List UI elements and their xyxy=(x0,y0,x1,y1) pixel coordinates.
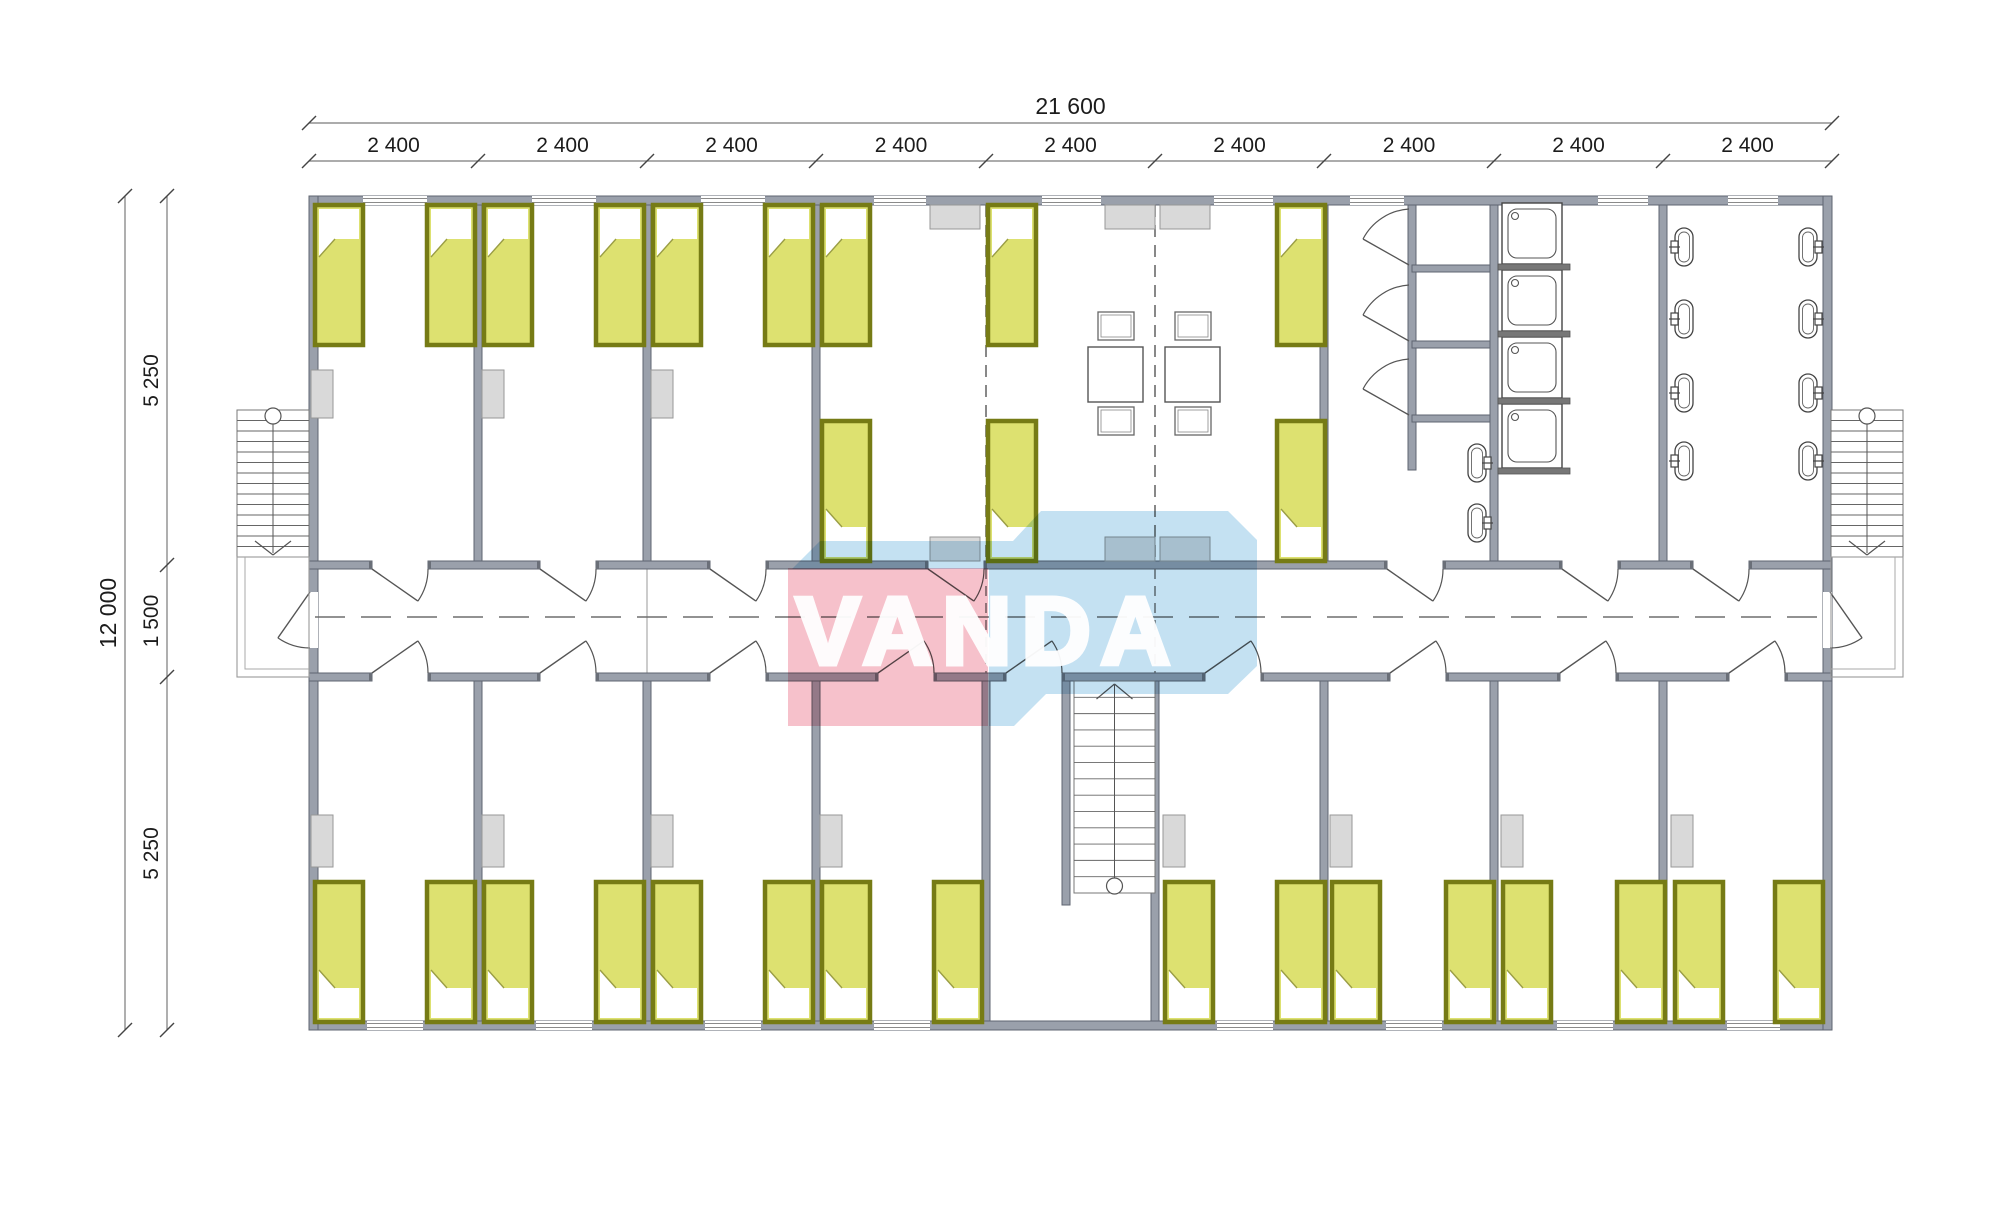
corridor-wall-bottom xyxy=(1785,673,1832,681)
dimension-height-segment-label: 1 500 xyxy=(140,595,163,648)
bed xyxy=(596,882,644,1022)
door-jamb xyxy=(1384,561,1387,569)
corridor-wall-bottom xyxy=(428,673,540,681)
cubicle-door-arc xyxy=(1363,359,1409,389)
shower-partition xyxy=(1498,468,1570,474)
wardrobe xyxy=(482,370,504,418)
corridor-wall-bottom xyxy=(1446,673,1560,681)
bed xyxy=(1446,882,1494,1022)
bed-pillow xyxy=(1507,988,1547,1018)
cubicle-door-leaf xyxy=(1363,239,1409,265)
watermark-text: VANDA xyxy=(796,578,1180,685)
chair-seat xyxy=(1098,407,1134,435)
window-opening xyxy=(363,196,427,205)
dimension-height-segment-label: 5 250 xyxy=(140,354,163,407)
bed xyxy=(315,882,363,1022)
window-opening xyxy=(1042,196,1101,205)
bed-pillow xyxy=(1450,988,1490,1018)
bed xyxy=(1277,421,1325,561)
door-leaf xyxy=(710,569,756,601)
toilet xyxy=(1669,442,1693,480)
door-jamb xyxy=(1387,673,1390,681)
chair-seat xyxy=(1098,312,1134,340)
door-leaf xyxy=(1562,569,1608,601)
window-opening xyxy=(536,1021,592,1030)
dimension-height-segment-label: 5 250 xyxy=(140,827,163,880)
door-swing-arc xyxy=(586,641,596,673)
shower-tray xyxy=(1502,337,1562,398)
porch-outline xyxy=(237,557,309,677)
door-jamb xyxy=(369,673,372,681)
bed xyxy=(1675,882,1723,1022)
door-jamb xyxy=(537,561,540,569)
bed-pillow xyxy=(1679,988,1719,1018)
cubicle-partition xyxy=(1412,415,1490,422)
dining-table xyxy=(1165,347,1220,402)
door-swing-arc xyxy=(1830,638,1862,648)
door-swing-arc xyxy=(1436,641,1446,673)
bed-pillow xyxy=(826,988,866,1018)
door-leaf xyxy=(1830,592,1862,638)
floor-plan-canvas: 21 6002 4002 4002 4002 4002 4002 4002 40… xyxy=(0,0,2000,1219)
bed-pillow xyxy=(992,209,1032,239)
window-opening xyxy=(874,1021,930,1030)
bed-pillow xyxy=(431,209,471,239)
bed xyxy=(822,882,870,1022)
bed xyxy=(653,882,701,1022)
door-leaf xyxy=(1729,641,1775,673)
bed xyxy=(765,205,813,345)
chair xyxy=(1098,312,1134,340)
wardrobe xyxy=(651,370,673,418)
dimension-segment-label: 2 400 xyxy=(1044,134,1097,157)
bed-pillow xyxy=(1281,988,1321,1018)
dimension-segment-label: 2 400 xyxy=(1383,134,1436,157)
window-opening xyxy=(1557,1021,1613,1030)
cubicle-door-arc xyxy=(1363,285,1409,315)
chair xyxy=(1175,407,1211,435)
door-jamb xyxy=(1618,561,1621,569)
stair-start-circle xyxy=(1859,408,1875,424)
window-opening xyxy=(1217,1021,1273,1030)
chair xyxy=(1175,312,1211,340)
table-top xyxy=(1088,347,1143,402)
corridor-wall-bottom xyxy=(1261,673,1390,681)
window-opening xyxy=(1598,196,1648,205)
porch-inner-line xyxy=(245,557,309,669)
cubicle-partition xyxy=(1412,341,1490,348)
bed-pillow xyxy=(938,988,978,1018)
window-opening xyxy=(1350,196,1404,205)
corridor-wall-bottom xyxy=(1616,673,1729,681)
door-jamb xyxy=(369,561,372,569)
corridor-wall-top xyxy=(596,561,710,569)
window-opening xyxy=(532,196,596,205)
bed xyxy=(315,205,363,345)
right-exterior-stair xyxy=(1831,408,1903,557)
dimension-total-height-label: 12 000 xyxy=(95,578,121,648)
window-opening xyxy=(1727,1021,1780,1030)
locker xyxy=(1160,205,1210,229)
door-swing-arc xyxy=(418,569,428,601)
porch-inner-line xyxy=(1831,557,1895,669)
central-stair xyxy=(1074,681,1155,894)
shower-tray xyxy=(1502,270,1562,331)
shower-tray-outer xyxy=(1502,404,1562,468)
door-leaf xyxy=(1387,569,1433,601)
door-swing-arc xyxy=(418,641,428,673)
bed-pillow xyxy=(1621,988,1661,1018)
bed-pillow xyxy=(1336,988,1376,1018)
bed-pillow xyxy=(1779,988,1819,1018)
toilet xyxy=(1669,300,1693,338)
door-jamb xyxy=(766,561,769,569)
interior-wall xyxy=(1408,205,1416,470)
bed xyxy=(1165,882,1213,1022)
bed xyxy=(988,205,1036,345)
dimension-segment-label: 2 400 xyxy=(1552,134,1605,157)
door-jamb xyxy=(1726,673,1729,681)
dimension-total-width-label: 21 600 xyxy=(1035,93,1105,119)
door-jamb xyxy=(1690,561,1693,569)
left-exterior-stair xyxy=(237,408,309,557)
bed-pillow xyxy=(488,988,528,1018)
bed-pillow xyxy=(600,209,640,239)
shower-tray-outer xyxy=(1502,337,1562,398)
table-top xyxy=(1165,347,1220,402)
door-jamb xyxy=(1557,673,1560,681)
bed-pillow xyxy=(431,988,471,1018)
door-jamb xyxy=(1616,673,1619,681)
watermark-layer: VANDA xyxy=(788,511,1257,726)
door-leaf xyxy=(372,641,418,673)
bed-pillow xyxy=(319,988,359,1018)
door-opening xyxy=(309,592,318,648)
bed-pillow xyxy=(769,988,809,1018)
door-jamb xyxy=(707,673,710,681)
shower-tray xyxy=(1502,404,1562,468)
shower-tray-outer xyxy=(1502,270,1562,331)
shower-tray xyxy=(1502,203,1562,264)
cubicle-door-leaf xyxy=(1363,315,1409,341)
door-leaf xyxy=(1693,569,1739,601)
bed xyxy=(1775,882,1823,1022)
door-jamb xyxy=(596,673,599,681)
cubicle-door-leaf xyxy=(1363,389,1409,415)
interior-wall xyxy=(1062,681,1070,905)
chair-seat xyxy=(1175,407,1211,435)
wardrobe xyxy=(1163,815,1185,867)
shower-partition xyxy=(1498,264,1570,270)
bed-pillow xyxy=(657,988,697,1018)
door-jamb xyxy=(1443,561,1446,569)
bed-pillow xyxy=(488,209,528,239)
wardrobe xyxy=(651,815,673,867)
door-leaf xyxy=(1560,641,1606,673)
shower-partition xyxy=(1498,398,1570,404)
entrance-porch xyxy=(1831,557,1903,677)
corridor-wall-top xyxy=(309,561,372,569)
bed-pillow xyxy=(657,209,697,239)
bed-pillow xyxy=(600,988,640,1018)
bed-pillow xyxy=(1281,209,1321,239)
bed xyxy=(1503,882,1551,1022)
stair-start-circle xyxy=(265,408,281,424)
floor-plan-drawing: 21 6002 4002 4002 4002 4002 4002 4002 40… xyxy=(0,0,2000,1219)
door-swing-arc xyxy=(756,641,766,673)
door-jamb xyxy=(1559,561,1562,569)
door-jamb xyxy=(428,673,431,681)
dimension-segment-label: 2 400 xyxy=(875,134,928,157)
locker xyxy=(1105,205,1155,229)
wardrobe xyxy=(1671,815,1693,867)
door-swing-arc xyxy=(1433,569,1443,601)
dimension-segment-label: 2 400 xyxy=(1721,134,1774,157)
window-opening xyxy=(367,1021,423,1030)
toilet xyxy=(1799,374,1824,412)
door-leaf xyxy=(540,641,586,673)
bed xyxy=(934,882,982,1022)
wardrobe xyxy=(820,815,842,867)
cubicle-door-arc xyxy=(1363,209,1409,239)
door-jamb xyxy=(766,673,769,681)
bed-pillow xyxy=(826,209,866,239)
window-opening xyxy=(705,1021,761,1030)
door-swing-arc xyxy=(1606,641,1616,673)
door-jamb xyxy=(1261,673,1264,681)
bed-pillow xyxy=(1281,527,1321,557)
dining-table xyxy=(1088,347,1143,402)
window-opening xyxy=(1386,1021,1442,1030)
window-opening xyxy=(874,196,926,205)
wardrobe xyxy=(311,370,333,418)
window-opening xyxy=(1728,196,1778,205)
interior-wall xyxy=(1490,205,1498,561)
door-swing-arc xyxy=(1775,641,1785,673)
bed xyxy=(484,205,532,345)
door-leaf xyxy=(540,569,586,601)
door-swing-arc xyxy=(278,638,310,648)
dimension-segment-label: 2 400 xyxy=(536,134,589,157)
interior-wall xyxy=(1659,205,1667,561)
door-jamb xyxy=(1749,561,1752,569)
bed xyxy=(653,205,701,345)
toilet xyxy=(1468,444,1493,482)
corridor-wall-bottom xyxy=(596,673,710,681)
bed-pillow xyxy=(769,209,809,239)
bed xyxy=(822,421,870,561)
bed-pillow xyxy=(1169,988,1209,1018)
door-swing-arc xyxy=(1739,569,1749,601)
bed xyxy=(822,205,870,345)
bed xyxy=(1617,882,1665,1022)
chair xyxy=(1098,407,1134,435)
dimension-segment-label: 2 400 xyxy=(705,134,758,157)
door-jamb xyxy=(1785,673,1788,681)
locker xyxy=(930,205,980,229)
bed xyxy=(1277,205,1325,345)
wardrobe xyxy=(482,815,504,867)
door-leaf xyxy=(278,592,310,638)
window-opening xyxy=(1214,196,1273,205)
stair-start-circle xyxy=(1107,878,1123,894)
toilet xyxy=(1468,504,1493,542)
bed xyxy=(1332,882,1380,1022)
corridor-wall-top xyxy=(1618,561,1693,569)
chair-seat xyxy=(1175,312,1211,340)
door-jamb xyxy=(428,561,431,569)
cubicle-partition xyxy=(1412,265,1490,272)
window-opening xyxy=(701,196,765,205)
door-swing-arc xyxy=(756,569,766,601)
wardrobe xyxy=(311,815,333,867)
toilet xyxy=(1669,228,1693,266)
bed xyxy=(596,205,644,345)
door-swing-arc xyxy=(586,569,596,601)
door-jamb xyxy=(537,673,540,681)
shower-partition xyxy=(1498,331,1570,337)
door-swing-arc xyxy=(1608,569,1618,601)
shower-tray-outer xyxy=(1502,203,1562,264)
porch-outline xyxy=(1831,557,1903,677)
corridor-wall-bottom xyxy=(309,673,372,681)
bed xyxy=(427,205,475,345)
corridor-wall-top xyxy=(1749,561,1832,569)
dimension-segment-label: 2 400 xyxy=(1213,134,1266,157)
toilet xyxy=(1669,374,1693,412)
toilet xyxy=(1799,300,1824,338)
bed xyxy=(1277,882,1325,1022)
door-leaf xyxy=(710,641,756,673)
door-leaf xyxy=(1390,641,1436,673)
wardrobe xyxy=(1501,815,1523,867)
door-jamb xyxy=(1446,673,1449,681)
entrance-porch xyxy=(237,557,309,677)
wardrobe xyxy=(1330,815,1352,867)
bed-pillow xyxy=(319,209,359,239)
bed xyxy=(765,882,813,1022)
dimension-segment-label: 2 400 xyxy=(367,134,420,157)
door-jamb xyxy=(707,561,710,569)
corridor-wall-top xyxy=(428,561,540,569)
bed xyxy=(427,882,475,1022)
door-jamb xyxy=(596,561,599,569)
toilet xyxy=(1799,228,1824,266)
corridor-wall-top xyxy=(1443,561,1562,569)
door-leaf xyxy=(372,569,418,601)
toilet xyxy=(1799,442,1824,480)
bed xyxy=(484,882,532,1022)
